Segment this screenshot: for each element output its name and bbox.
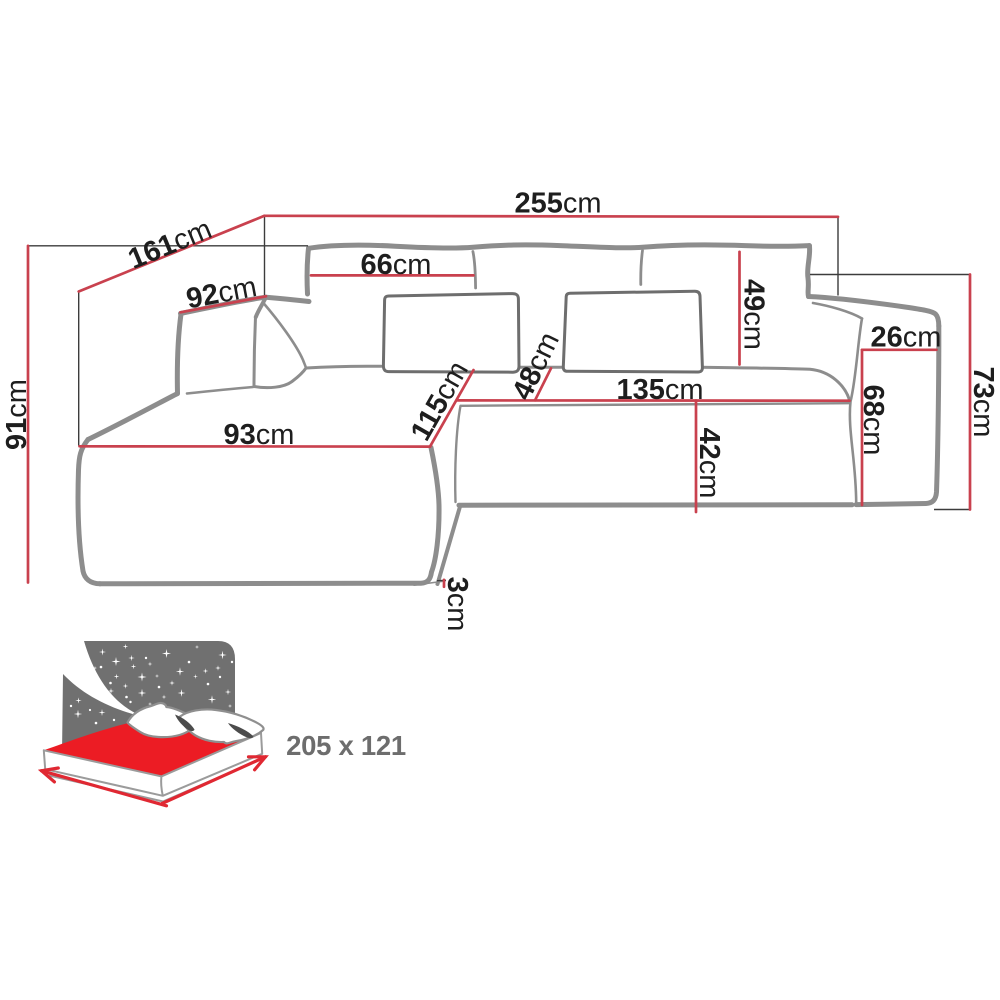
svg-text:73cm: 73cm: [967, 367, 999, 438]
svg-text:91cm: 91cm: [1, 379, 33, 450]
svg-text:93cm: 93cm: [224, 419, 295, 451]
svg-text:135cm: 135cm: [616, 374, 703, 406]
svg-text:205 x 121: 205 x 121: [286, 730, 406, 761]
svg-text:66cm: 66cm: [361, 249, 432, 281]
svg-text:68cm: 68cm: [857, 385, 889, 456]
svg-text:3cm: 3cm: [441, 577, 473, 632]
svg-text:42cm: 42cm: [693, 428, 725, 499]
svg-text:49cm: 49cm: [738, 279, 770, 350]
svg-text:255cm: 255cm: [514, 188, 601, 220]
svg-text:26cm: 26cm: [871, 322, 942, 354]
